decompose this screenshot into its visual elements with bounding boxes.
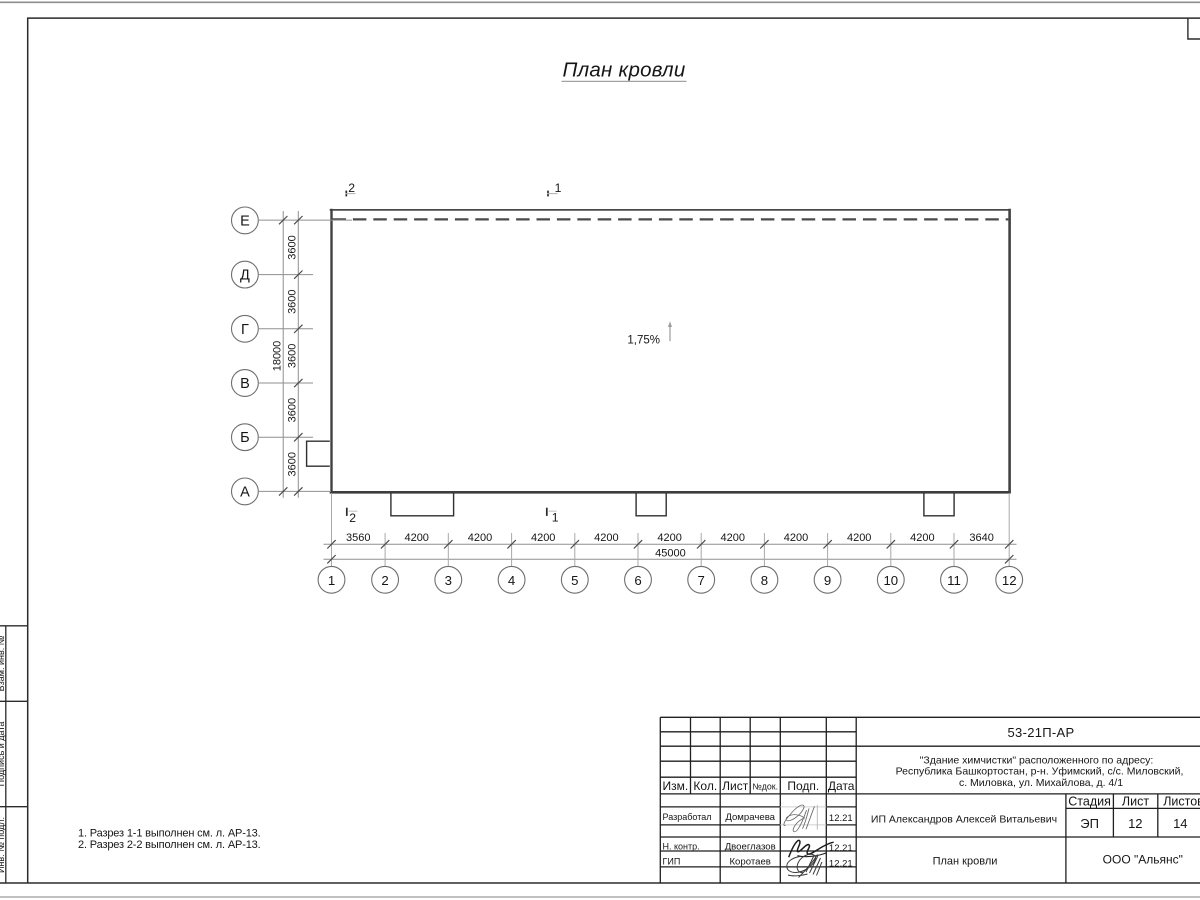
svg-text:Н. контр.: Н. контр. <box>663 842 700 852</box>
svg-text:3: 3 <box>445 573 452 588</box>
svg-text:2: 2 <box>381 573 388 588</box>
svg-text:Двоеглазов: Двоеглазов <box>725 842 776 853</box>
svg-text:Б: Б <box>240 430 250 446</box>
svg-text:1: 1 <box>555 181 562 195</box>
svg-text:12.21: 12.21 <box>829 813 853 824</box>
svg-text:Разработал: Разработал <box>663 812 712 822</box>
svg-text:3640: 3640 <box>969 532 993 544</box>
svg-text:4200: 4200 <box>910 532 934 544</box>
svg-text:Коротаев: Коротаев <box>729 856 770 867</box>
svg-text:Листов: Листов <box>1163 795 1200 809</box>
svg-text:Изм.: Изм. <box>663 779 689 793</box>
svg-text:2: 2 <box>348 181 355 195</box>
svg-text:4200: 4200 <box>721 532 745 544</box>
svg-text:ГИП: ГИП <box>663 856 681 866</box>
svg-text:ИП Александров Алексей Виталье: ИП Александров Алексей Витальевич <box>871 813 1057 825</box>
svg-text:4200: 4200 <box>657 532 681 544</box>
svg-text:3600: 3600 <box>287 344 299 368</box>
svg-text:ООО "Альянс": ООО "Альянс" <box>1103 852 1183 866</box>
svg-text:1. Разрез 1-1 выполнен см. л.: 1. Разрез 1-1 выполнен см. л. АР-13. <box>78 827 261 839</box>
svg-text:1: 1 <box>328 573 335 588</box>
svg-text:Домрачева: Домрачева <box>725 812 775 823</box>
svg-text:Стадия: Стадия <box>1068 795 1111 809</box>
svg-text:4200: 4200 <box>531 532 555 544</box>
svg-text:3600: 3600 <box>287 235 299 259</box>
svg-text:4200: 4200 <box>594 532 618 544</box>
svg-text:А: А <box>240 484 250 500</box>
svg-text:8: 8 <box>761 573 768 588</box>
svg-text:6: 6 <box>634 573 641 588</box>
svg-text:12: 12 <box>1128 816 1142 831</box>
svg-text:9: 9 <box>824 573 831 588</box>
svg-text:4200: 4200 <box>468 532 492 544</box>
svg-text:12: 12 <box>1002 573 1017 588</box>
svg-text:План кровли: План кровли <box>933 855 998 867</box>
svg-text:Дата: Дата <box>828 779 855 793</box>
svg-text:3600: 3600 <box>287 452 299 476</box>
svg-text:В: В <box>240 376 250 392</box>
svg-text:12.21: 12.21 <box>829 858 853 869</box>
svg-text:2. Разрез 2-2 выполнен см. л.: 2. Разрез 2-2 выполнен см. л. АР-13. <box>78 839 261 851</box>
svg-text:11: 11 <box>947 573 961 588</box>
svg-text:3600: 3600 <box>287 289 299 313</box>
svg-text:4: 4 <box>508 573 515 588</box>
svg-text:Подп.: Подп. <box>787 779 819 793</box>
svg-text:4200: 4200 <box>784 532 808 544</box>
svg-text:Е: Е <box>240 213 250 229</box>
svg-text:Лист: Лист <box>722 779 749 793</box>
svg-text:Взам. инв. №: Взам. инв. № <box>0 635 6 691</box>
svg-text:Лист: Лист <box>1122 795 1149 809</box>
svg-text:Республика Башкортостан, р-н.: Республика Башкортостан, р-н. Уфимский, … <box>896 766 1184 778</box>
svg-text:3600: 3600 <box>287 398 299 422</box>
svg-text:10: 10 <box>883 573 898 588</box>
svg-text:Д: Д <box>240 268 250 284</box>
svg-text:4200: 4200 <box>847 532 871 544</box>
svg-text:1: 1 <box>552 510 559 524</box>
svg-text:45000: 45000 <box>655 547 686 559</box>
svg-text:Кол.: Кол. <box>693 779 717 793</box>
svg-text:№док.: №док. <box>752 781 778 791</box>
svg-text:12.21: 12.21 <box>829 843 853 854</box>
svg-text:5: 5 <box>571 573 578 588</box>
svg-text:Подпись и дата: Подпись и дата <box>0 722 6 787</box>
svg-text:53-21П-АР: 53-21П-АР <box>1008 725 1075 740</box>
svg-text:7: 7 <box>698 573 705 588</box>
svg-text:2: 2 <box>349 511 356 525</box>
svg-text:Инв. № подл.: Инв. № подл. <box>0 817 6 873</box>
svg-text:План кровли: План кровли <box>562 58 685 81</box>
svg-text:18000: 18000 <box>272 341 284 372</box>
svg-text:3560: 3560 <box>346 532 370 544</box>
svg-text:1,75%: 1,75% <box>627 335 660 347</box>
svg-text:ЭП: ЭП <box>1080 816 1099 831</box>
svg-text:4200: 4200 <box>404 532 428 544</box>
svg-text:14: 14 <box>1173 816 1187 831</box>
svg-text:с. Миловка, ул. Михайлова, д.: с. Миловка, ул. Михайлова, д. 4/1 <box>959 777 1123 789</box>
svg-text:Г: Г <box>241 322 249 338</box>
